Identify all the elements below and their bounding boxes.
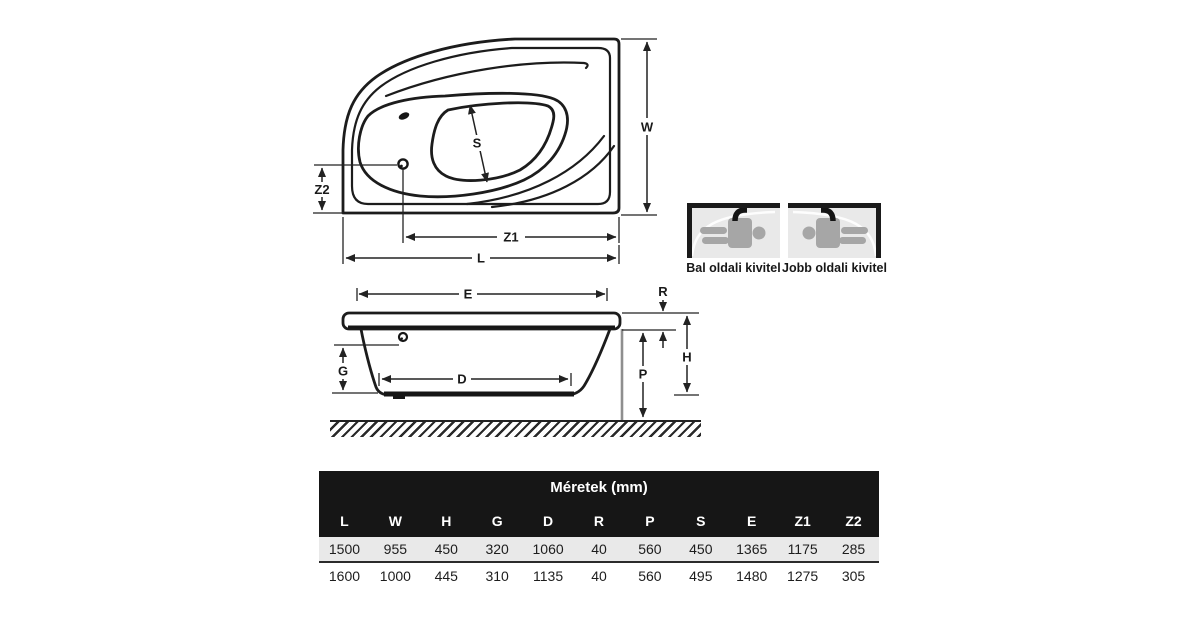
drain-fitting [393,395,405,399]
table-cell: 1500 [319,541,370,557]
table-cell: 955 [370,541,421,557]
table-col-header: R [574,513,625,529]
pictogram-left-version: Bal oldali kivitel [687,203,780,275]
table-col-header: P [624,513,675,529]
right-version-label: Jobb oldali kivitel [774,261,895,275]
table-header: Méretek (mm) L W H G D R P S E Z1 Z2 [319,471,879,537]
dimensions-table: Méretek (mm) L W H G D R P S E Z1 Z2 150… [319,471,879,589]
table-cell: 1000 [370,568,421,584]
table-row: 1500 955 450 320 1060 40 560 450 1365 11… [319,537,879,561]
pictogram-right-version: Jobb oldali kivitel [788,203,881,275]
left-version-icon [687,203,780,258]
right-version-icon [788,203,881,258]
dim-label-d: D [457,372,466,387]
ground-hatch [330,420,701,437]
table-cell: 560 [624,541,675,557]
table-title: Méretek (mm) [319,471,879,504]
table-col-header: L [319,513,370,529]
side-view: E R H P G D [332,284,699,420]
table-cell: 445 [421,568,472,584]
table-column-headers: L W H G D R P S E Z1 Z2 [319,504,879,537]
table-col-header: S [675,513,726,529]
dim-label-h: H [682,350,691,365]
top-view: W Z2 Z1 L S [309,39,657,266]
table-cell: 495 [675,568,726,584]
table-cell: 1135 [523,568,574,584]
table-cell: 1060 [523,541,574,557]
table-cell: 560 [624,568,675,584]
orientation-pictograms: Bal oldali kivitel Jobb oldali kivitel [687,203,881,275]
dim-label-w: W [641,120,654,135]
table-col-header: Z1 [777,513,828,529]
table-row: 1600 1000 445 310 1135 40 560 495 1480 1… [319,561,879,589]
drain-dot [400,165,403,168]
table-col-header: W [370,513,421,529]
table-cell: 1600 [319,568,370,584]
dim-label-z1: Z1 [503,230,518,245]
technical-drawing: W Z2 Z1 L S [0,0,1200,460]
table-cell: 1365 [726,541,777,557]
table-cell: 450 [675,541,726,557]
table-cell: 310 [472,568,523,584]
table-cell: 320 [472,541,523,557]
table-cell: 285 [828,541,879,557]
table-col-header: Z2 [828,513,879,529]
dim-label-g: G [338,364,348,379]
table-cell: 1175 [777,541,828,557]
table-cell: 40 [574,541,625,557]
table-cell: 305 [828,568,879,584]
side-drain-dot [401,337,403,339]
table-col-header: G [472,513,523,529]
dim-label-e: E [464,287,473,302]
drain-hole [398,159,407,168]
dim-label-r: R [658,284,668,299]
table-col-header: E [726,513,777,529]
dim-label-z2: Z2 [314,182,329,197]
side-drain-hole [399,333,407,341]
table-cell: 40 [574,568,625,584]
table-cell: 450 [421,541,472,557]
table-cell: 1275 [777,568,828,584]
dim-label-l: L [477,251,485,266]
table-cell: 1480 [726,568,777,584]
table-col-header: D [523,513,574,529]
dim-label-p: P [639,367,648,382]
dim-label-s: S [473,136,482,151]
page: W Z2 Z1 L S [0,0,1200,630]
table-col-header: H [421,513,472,529]
